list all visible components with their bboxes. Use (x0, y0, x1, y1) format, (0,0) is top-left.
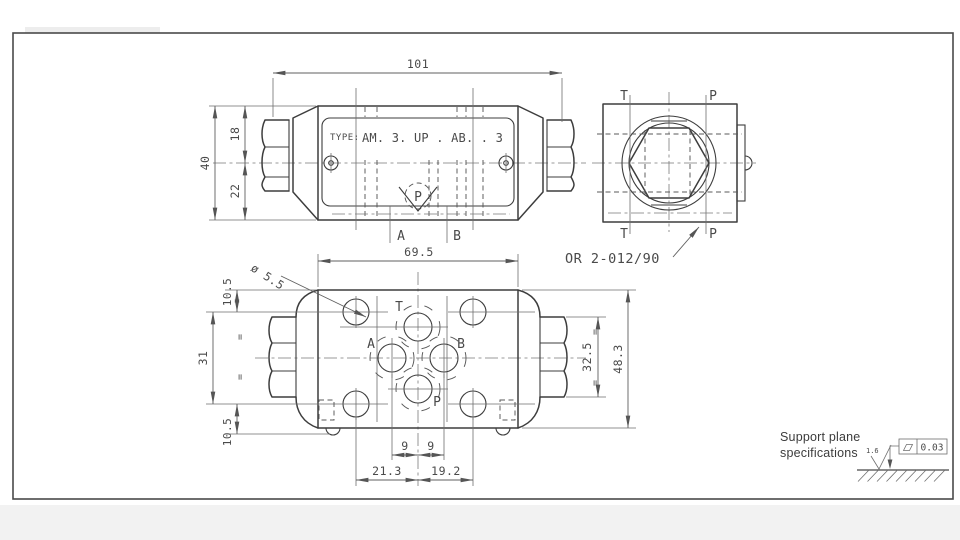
type-prefix-label: TYPE: (330, 133, 360, 143)
bottom-port-t-label: T (395, 300, 403, 315)
front-port-b-label: B (453, 229, 461, 244)
scan-smudge (25, 27, 160, 33)
dim-21_3-text: 21.3 (372, 464, 402, 478)
drawing-sheet: P TYPE: AM. 3. UP . AB. . 3 A B 101 40 1… (0, 0, 960, 540)
dim-10_5-bottom-text: 10.5 (221, 418, 234, 447)
dim-9-right-text: 9 (427, 439, 434, 453)
oring-label: OR 2-012/90 (565, 251, 660, 267)
dim-22-text: 22 (228, 184, 242, 199)
side-p-top-label: P (709, 89, 717, 104)
dim-32_5-text: 32.5 (580, 342, 594, 372)
page-bottom-margin (0, 505, 960, 540)
dim-19_2-text: 19.2 (431, 464, 461, 478)
support-note-line1: Support plane (780, 430, 860, 444)
dim-40-text: 40 (198, 156, 212, 171)
bottom-port-a-label: A (367, 337, 375, 352)
dim-18-text: 18 (228, 127, 242, 142)
side-t-bottom-label: T (620, 227, 628, 242)
equal-mark: = (235, 334, 246, 340)
front-port-a-label: A (397, 229, 405, 244)
bottom-port-b-label: B (457, 337, 465, 352)
dim-10_5-top-text: 10.5 (221, 278, 234, 307)
roughness-value: 1.6 (866, 447, 879, 455)
equal-mark: = (590, 329, 601, 335)
support-note-line2: specifications (780, 446, 858, 460)
bottom-port-p-label: P (433, 395, 441, 410)
equal-mark: = (590, 380, 601, 386)
type-value-label: AM. 3. UP . AB. . 3 (362, 131, 503, 145)
equal-mark: = (235, 374, 246, 380)
check-valve-port-label: P (414, 190, 422, 205)
side-p-bottom-label: P (709, 227, 717, 242)
dim-9-left-text: 9 (401, 439, 408, 453)
dim-31-text: 31 (196, 351, 210, 366)
dim-48_3-text: 48.3 (611, 344, 625, 374)
dim-69_5-text: 69.5 (404, 245, 434, 259)
side-t-top-label: T (620, 89, 628, 104)
dim-101-text: 101 (407, 57, 429, 71)
technical-drawing: P TYPE: AM. 3. UP . AB. . 3 A B 101 40 1… (0, 0, 960, 540)
flatness-value: 0.03 (921, 443, 944, 454)
